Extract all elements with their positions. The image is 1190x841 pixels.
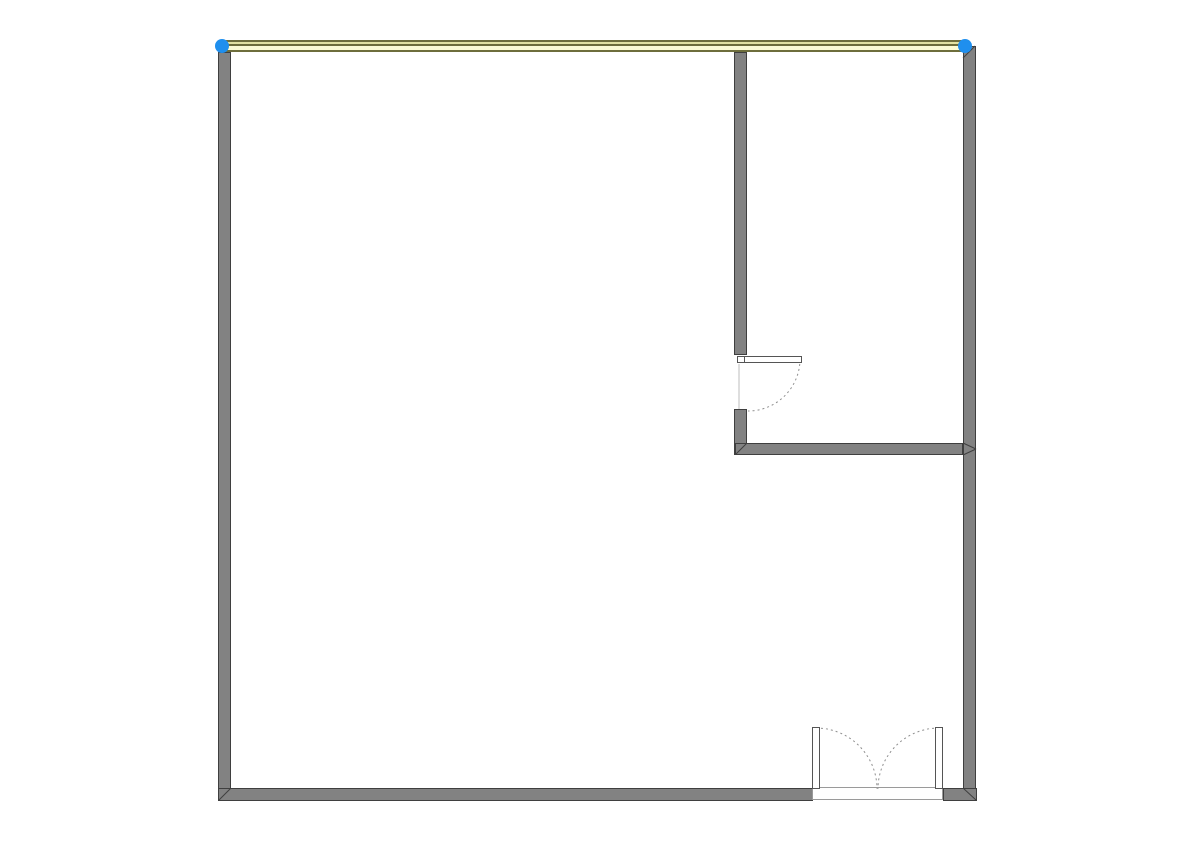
double-door-left-panel[interactable] [813,728,820,789]
single-door-panel[interactable] [738,357,802,363]
double-door-threshold [813,788,943,800]
wall-top-selected-stripe-4 [222,50,965,52]
wall-endpoint-handle-left[interactable] [215,39,229,53]
double-door-right-panel[interactable] [936,728,943,789]
wall-endpoint-handle-right[interactable] [958,39,972,53]
wall-top-selected-stripe-0[interactable] [222,40,965,42]
wall-interior-horizontal[interactable] [736,444,963,455]
double-door-right-swing-arc [878,728,939,789]
wall-top-selected-stripe-2 [222,44,965,46]
wall-bottom-right-of-door[interactable] [944,789,977,801]
single-door-hinge-block [738,357,745,363]
floorplan-drawing [0,0,1190,841]
wall-right[interactable] [964,47,976,801]
wall-bottom-left-of-door[interactable] [219,789,813,801]
double-door-left-swing-arc [816,728,877,789]
wall-left[interactable] [219,53,231,801]
single-door-swing-arc [748,359,800,411]
wall-interior-vertical-upper[interactable] [735,53,747,355]
wall-top-selected-stripe-3 [222,46,965,50]
wall-top-selected-stripe-1 [222,42,965,44]
floorplan-canvas[interactable] [0,0,1190,841]
